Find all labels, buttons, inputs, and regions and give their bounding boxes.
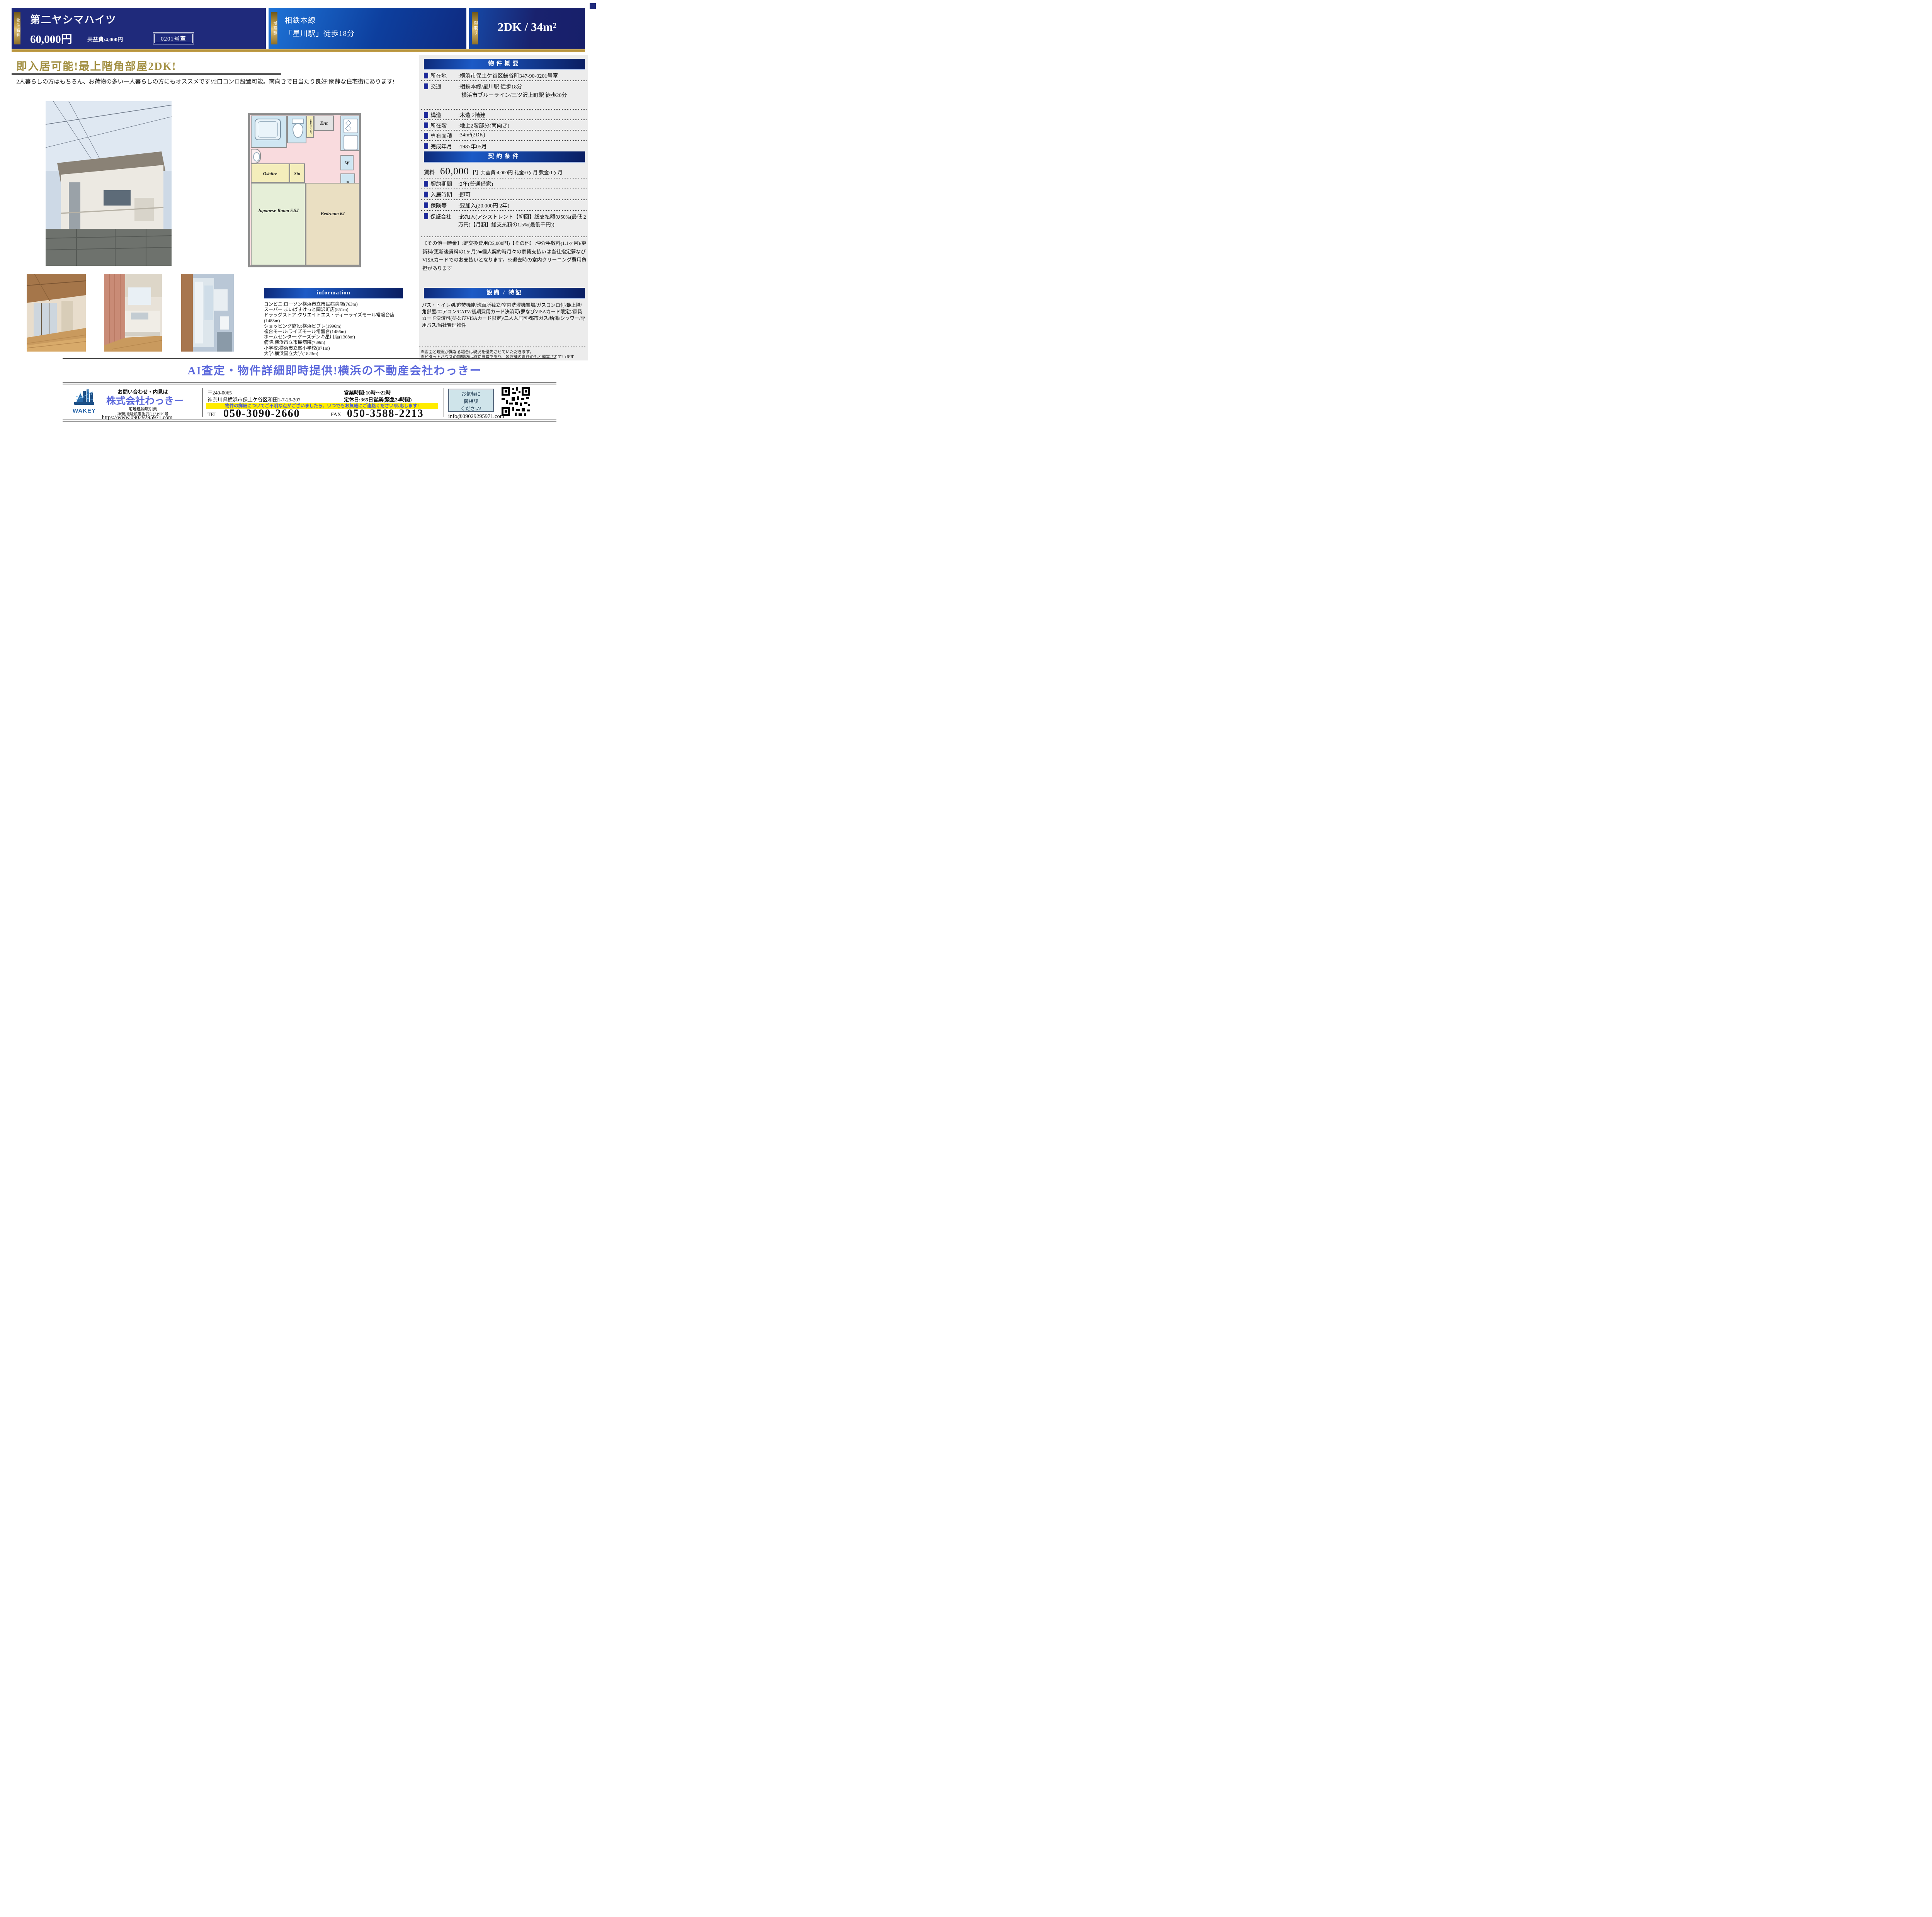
divider <box>421 109 587 110</box>
oshiire-closet: Oshiire <box>251 163 289 183</box>
station-walk: 「星川駅」徒歩18分 <box>285 28 355 38</box>
contract-row-movein: 入居時期 :即可 <box>424 191 588 199</box>
fax-label: FAX <box>331 412 341 418</box>
row-label: 交通 <box>430 83 458 90</box>
rent-label: 賃料 <box>424 170 435 176</box>
holiday-info: 定休日:365日営業(緊急24時間) <box>344 396 412 403</box>
row-value: :相鉄本線/星川駅 徒歩18分 <box>458 83 588 90</box>
contract-row-guarantor: 保証会社 :必加入(アシストレント【初回】総支払額の50%(最低 2万円)【月額… <box>424 212 588 228</box>
row-value: :木造 2階建 <box>458 111 588 119</box>
row-label: 契約期間 <box>430 180 458 188</box>
disclaimer-note-2: ※ピタットハウスの加盟店は独立自営であり、各店舗の責任のもと運営されています <box>420 354 590 358</box>
divider <box>421 189 587 189</box>
info-item: 複合モール:ライズモール常盤台(1486m) <box>264 329 404 334</box>
bullet-icon <box>424 83 428 89</box>
info-item: 病院:横浜市立市民病院(739m) <box>264 340 404 345</box>
row-value: :要加入(20,000円 2年) <box>458 202 588 209</box>
company-address: 神奈川県横浜市保土ケ谷区和田1-7-29-207 <box>207 396 301 403</box>
basin-icon <box>253 152 260 161</box>
row-label: 完成年月 <box>430 143 458 150</box>
row-label: 保険等 <box>430 202 458 209</box>
row-value: :34m²(2DK) <box>458 132 588 140</box>
interior-room-image <box>27 274 86 352</box>
divider <box>421 236 587 237</box>
info-item: 小学校:横浜市立峯小学校(871m) <box>264 345 404 351</box>
facilities-section-header: 設備 / 特記 <box>424 288 585 299</box>
row-value: :2年(普通借家) <box>458 180 588 188</box>
consult-line: ください! <box>449 405 493 413</box>
rent-value: 60,000 <box>435 166 473 177</box>
bullet-icon <box>424 143 428 149</box>
japanese-room: Japanese Room 5.5J <box>251 183 306 265</box>
interior-photo-kitchen <box>104 274 162 352</box>
rent-detail: 共益費:4,000円 礼金:0ヶ月 敷金:1ヶ月 <box>481 170 563 175</box>
bullet-icon <box>424 202 428 208</box>
rent-price: 60,000円 <box>30 30 72 46</box>
nearest-station-tab: 最寄駅 <box>271 12 277 44</box>
divider <box>421 119 587 120</box>
overview-row-area: 専有面積 :34m²(2DK) <box>424 132 588 140</box>
business-hours: 営業時間:10時〜22時 <box>344 389 391 396</box>
floor-plan: Shoes Box Ent W R Oshiire Sto Japanese R… <box>248 113 361 267</box>
divider <box>419 347 587 347</box>
information-list: コンビニ:ローソン横浜市立市民病院店(763m) スーパー:まいばすけっと岡沢町… <box>264 301 404 356</box>
bullet-icon <box>424 181 428 187</box>
exterior-photo <box>46 101 172 266</box>
kitchen-counter <box>340 116 360 151</box>
facilities-text: バス・トイレ別/追焚機能/洗面所独立/室内洗濯機置場/ガスコンロ付/最上階/角部… <box>422 302 586 329</box>
row-label: 所在地 <box>430 72 458 80</box>
info-item: スーパー:まいばすけっと岡沢町店(851m) <box>264 307 404 312</box>
contract-row-term: 契約期間 :2年(普通借家) <box>424 180 588 188</box>
title-divider <box>12 73 281 75</box>
consult-line: お気軽に <box>449 391 493 398</box>
info-item: ドラッグストア:クリエイトエス・ディーライズモール常磐台店(1483m) <box>264 312 404 323</box>
info-item: ショッピング施設:横浜ビブレ(1996m) <box>264 323 404 329</box>
row-value: :1987年05月 <box>458 143 588 150</box>
banner-slogan: AI査定・物件詳細即時提供!横浜の不動産会社わっきー <box>63 362 556 378</box>
contract-row-insurance: 保険等 :要加入(20,000円 2年) <box>424 202 588 209</box>
company-name: 株式会社わっきー <box>99 393 191 407</box>
rent-unit: 円 <box>473 170 481 176</box>
row-label: 専有面積 <box>430 132 458 140</box>
property-name-tab: 物件名称 <box>14 12 20 44</box>
wash-basin <box>251 149 261 163</box>
tel-label: TEL <box>207 412 218 418</box>
row-label: 入居時期 <box>430 191 458 199</box>
overview-row-floor: 所在階 :地上2階部分(南向き) <box>424 122 588 129</box>
company-email[interactable]: info@09029295971.com <box>448 413 541 420</box>
common-fee: 共益費:4,000円 <box>87 36 123 43</box>
footer-divider-left <box>202 388 203 417</box>
bullet-icon <box>424 73 428 78</box>
bathroom <box>251 116 287 148</box>
header-gold-bar <box>12 49 585 52</box>
row-label: 所在階 <box>430 122 458 129</box>
divider <box>421 130 587 131</box>
shoes-box: Shoes Box <box>306 116 314 138</box>
stove-icon <box>344 119 358 133</box>
other-fees-text: 【その他一時金】:鍵交換費用(22,000円)【その他】:仲介手数料(1.1ヶ月… <box>422 240 587 273</box>
bullet-icon <box>424 133 428 139</box>
bedroom: Bedroom 6J <box>306 183 360 265</box>
row-label: 構造 <box>430 111 458 119</box>
row-label: 保証会社 <box>430 212 458 228</box>
divider <box>421 140 587 141</box>
row-label-spacer <box>430 91 458 99</box>
overview-section-header: 物件概要 <box>424 59 585 70</box>
sink-icon <box>344 135 358 150</box>
interior-photo-bathroom <box>181 274 234 352</box>
property-name: 第二ヤシマハイツ <box>30 12 116 26</box>
divider <box>421 178 587 178</box>
overview-row-structure: 構造 :木造 2階建 <box>424 111 588 119</box>
divider <box>421 199 587 200</box>
rent-row: 賃料60,000円共益費:4,000円 礼金:0ヶ月 敷金:1ヶ月 <box>424 166 590 177</box>
room-number: 0201号室 <box>154 34 193 43</box>
row-value: :地上2階部分(南向き) <box>458 122 588 129</box>
bullet-icon <box>424 192 428 197</box>
storage: Sto <box>289 163 305 183</box>
consult-box: お気軽に 御相談 ください! <box>448 389 494 412</box>
room-number-box: 0201号室 <box>153 32 194 44</box>
washer-space: W <box>340 155 354 170</box>
row-value: 横浜市ブルーライン/三ツ沢上町駅 徒歩20分 <box>458 91 588 99</box>
overview-row-built: 完成年月 :1987年05月 <box>424 143 588 150</box>
bullet-icon <box>424 122 428 128</box>
layout-size: 2DK / 34m² <box>469 20 585 34</box>
exterior-photo-image <box>46 101 172 266</box>
page-title: 即入居可能!最上階角部屋2DK! <box>16 58 177 73</box>
footer-divider-right <box>444 388 444 417</box>
rail-line: 相鉄本線 <box>285 15 316 25</box>
interior-bathroom-image <box>181 274 234 352</box>
qr-code-image <box>501 386 531 416</box>
info-item: ホームセンター:ケーズデンキ星川店(1308m) <box>264 334 404 340</box>
contract-section-header: 契約条件 <box>424 151 585 163</box>
header-station-block: 最寄駅 相鉄本線 「星川駅」徒歩18分 <box>269 8 466 49</box>
interior-kitchen-image <box>104 274 162 352</box>
overview-row-access-2: 横浜市ブルーライン/三ツ沢上町駅 徒歩20分 <box>424 91 588 99</box>
wakey-logo-icon <box>73 389 95 406</box>
toilet-bowl-icon <box>293 123 303 138</box>
divider <box>421 210 587 211</box>
corner-decoration <box>590 3 596 9</box>
banner-top-rule <box>63 358 556 359</box>
row-value: :即可 <box>458 191 588 199</box>
entrance: Ent <box>314 116 334 131</box>
info-item: 大学:横浜国立大学(1823m) <box>264 351 404 356</box>
footer-bottom-rule <box>63 420 556 421</box>
postal-code: 〒240-0065 <box>207 389 232 396</box>
row-value: :横浜市保土ケ谷区鎌谷町347-90-0201号室 <box>458 72 588 80</box>
row-value: :必加入(アシストレント【初回】総支払額の50%(最低 2万円)【月額】総支払額… <box>458 212 588 228</box>
header-layout-block: 間取り 2DK / 34m² <box>469 8 585 49</box>
tel-number[interactable]: 050-3090-2660 <box>223 408 300 420</box>
wakey-logo-text: WAKEY <box>70 408 99 414</box>
qr-code <box>501 386 531 416</box>
company-logo: WAKEY <box>70 389 99 414</box>
bathtub-icon <box>255 119 281 140</box>
interior-photo-room <box>27 274 86 352</box>
toilet-room <box>287 116 306 143</box>
flyer-page: 物件名称 第二ヤシマハイツ 60,000円 共益費:4,000円 0201号室 … <box>0 0 597 422</box>
info-item: コンビニ:ローソン横浜市立市民病院店(763m) <box>264 301 404 307</box>
overview-row-access: 交通 :相鉄本線/星川駅 徒歩18分 <box>424 83 588 90</box>
divider <box>421 80 587 81</box>
fax-number: 050-3588-2213 <box>347 408 424 420</box>
property-description: 2人暮らしの方はもちろん、お荷物の多い一人暮らしの方にもオススメです!/2口コン… <box>16 78 408 86</box>
banner-bottom-rule <box>63 382 556 384</box>
information-section-header: information <box>264 288 403 299</box>
consult-line: 御相談 <box>449 398 493 405</box>
header-property-block: 物件名称 第二ヤシマハイツ 60,000円 共益費:4,000円 0201号室 <box>12 8 266 49</box>
bullet-icon <box>424 213 428 219</box>
overview-row-location: 所在地 :横浜市保土ケ谷区鎌谷町347-90-0201号室 <box>424 72 588 80</box>
bullet-icon <box>424 112 428 118</box>
